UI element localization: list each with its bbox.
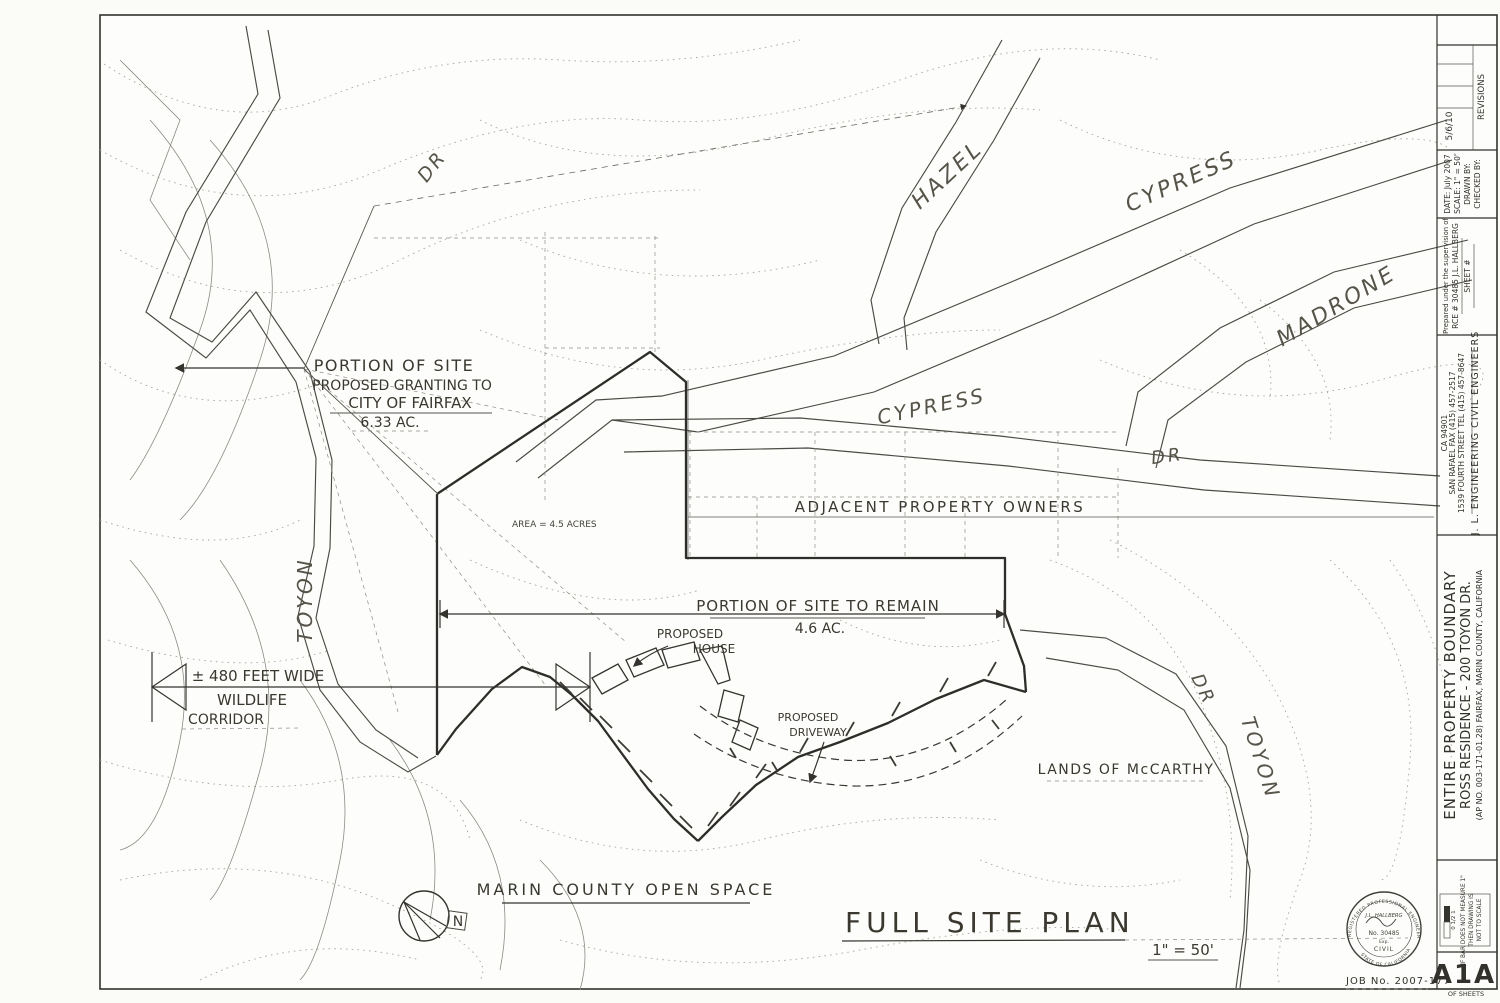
caption-title: FULL SITE PLAN [845,906,1135,939]
seal-civil: CIVIL [1374,946,1394,953]
annotation-portion-grant-line3: CITY OF FAIRFAX [348,394,471,412]
scalebar-note2: THEN DRAWING IS [1469,893,1475,947]
titleblock-date: DATE: July 2007 [1443,154,1452,214]
scalebar-note3: NOT TO SCALE [1477,898,1483,941]
seal-exp: Exp. [1379,939,1389,945]
supervision-line1: Prepared under the supervision of [1442,218,1450,334]
titleblock-scale: SCALE: 1" = 50' [1453,154,1462,214]
annotation-portion-grant-acreage: 6.33 AC. [360,415,419,431]
scale-bar-filled [1444,906,1450,922]
annotation-wildlife-line1: ± 480 FEET WIDE [192,667,325,685]
seal-license-number: No. 30485 [1369,930,1400,937]
annotation-lands-mccarthy: LANDS OF McCARTHY [1038,762,1215,778]
annotation-proposed-house-line1: PROPOSED [657,627,723,641]
annotation-proposed-driveway-line2: DRIVEWAY [789,726,847,739]
annotation-proposed-house-line2: HOUSE [693,642,735,656]
annotation-portion-remain-line1: PORTION OF SITE TO REMAIN [696,597,940,615]
sheet-of: OF SHEETS [1448,990,1484,998]
scanned-site-plan-sheet: DR HAZEL CYPRESS MADRONE CYPRESS DR TOYO… [0,0,1500,1003]
annotation-portion-remain-acreage: 4.6 AC. [795,621,845,637]
titleblock-checked-by: CHECKED BY: [1473,159,1482,209]
firm-address1: 1539 FOURTH STREET TEL (415) 457-8647 [1457,353,1466,513]
site-plan-drawing: DR HAZEL CYPRESS MADRONE CYPRESS DR TOYO… [0,0,1500,1003]
north-label: N [453,914,463,930]
firm-name: J. L. ENGINEERING CIVIL ENGINEERS [1470,331,1481,537]
annotation-wildlife-line2: WILDLIFE [217,691,287,709]
annotation-proposed-driveway-line1: PROPOSED [778,711,839,724]
caption-scale: 1" = 50' [1152,941,1214,959]
firm-address3: CA 94901 [1440,414,1449,451]
project-title-line2: ROSS RESIDENCE - 200 TOYON DR. [1459,581,1474,809]
street-label-toyon-left: TOYON [293,557,317,643]
annotation-open-space: MARIN COUNTY OPEN SPACE [477,880,776,899]
annotation-area-note: AREA = 4.5 ACRES [512,520,597,530]
annotation-adjacent-owners: ADJACENT PROPERTY OWNERS [795,498,1086,516]
project-title-line1: ENTIRE PROPERTY BOUNDARY [1441,570,1459,819]
annotation-portion-grant-line1: PORTION OF SITE [314,356,474,375]
street-label-dr-mid: DR [1150,444,1185,469]
project-title-line3: (AP NO. 003-171-01.28) FAIRFAX, MARIN CO… [1475,569,1484,820]
firm-address2: SAN RAFAEL FAX (415) 457-2517 [1448,371,1457,494]
annotation-portion-grant-line2: PROPOSED GRANTING TO [312,378,492,394]
revision-entry-1: 5/6/10 [1445,111,1455,140]
supervision-line2: RCE # 30485 J.L. HALLBERG [1451,223,1460,329]
job-number: JOB No. 2007-177 [1345,976,1451,987]
supervision-sheet: SHEET # [1463,259,1472,292]
annotation-wildlife-line3: CORRIDOR [188,712,264,728]
titleblock-drawn-by: DRAWN BY: [1463,163,1472,205]
scalebar-note1: IF BAR DOES NOT MEASURE 1" [1461,875,1467,965]
revisions-header: REVISIONS [1477,74,1487,120]
scalebar-ticks: 0 1/2 1 [1451,910,1457,929]
